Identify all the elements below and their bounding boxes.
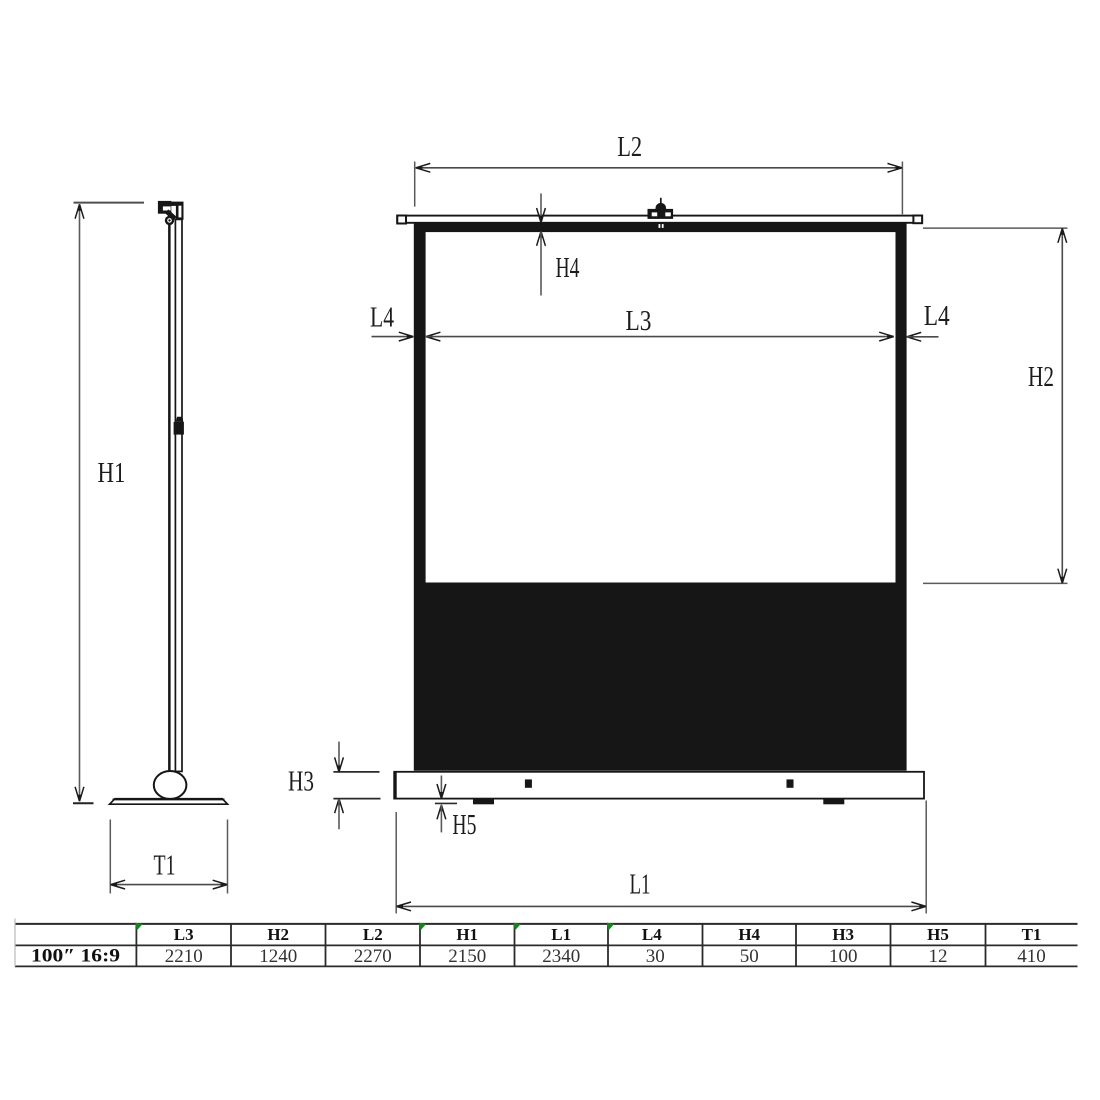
svg-text:L4: L4 [642, 925, 662, 944]
svg-text:H5: H5 [927, 925, 949, 944]
svg-text:L1: L1 [630, 869, 651, 901]
svg-text:H4: H4 [556, 252, 580, 284]
svg-text:H5: H5 [452, 809, 476, 841]
svg-text:30: 30 [646, 946, 665, 967]
svg-text:100″ 16:9: 100″ 16:9 [31, 946, 120, 967]
svg-text:H1: H1 [98, 457, 126, 489]
svg-text:2340: 2340 [542, 946, 580, 967]
svg-text:L1: L1 [551, 925, 571, 944]
svg-text:T1: T1 [154, 850, 176, 882]
svg-text:100: 100 [829, 946, 858, 967]
svg-text:L2: L2 [363, 925, 383, 944]
svg-text:T1: T1 [1022, 925, 1042, 944]
svg-text:50: 50 [740, 946, 759, 967]
svg-text:H4: H4 [738, 925, 760, 944]
svg-text:1240: 1240 [259, 946, 297, 967]
svg-text:L4: L4 [370, 302, 394, 334]
svg-text:H1: H1 [456, 925, 478, 944]
svg-text:2210: 2210 [165, 946, 203, 967]
svg-text:H2: H2 [267, 925, 289, 944]
svg-text:L2: L2 [617, 131, 642, 163]
svg-text:410: 410 [1017, 946, 1046, 967]
svg-text:L3: L3 [174, 925, 194, 944]
svg-text:L3: L3 [626, 305, 652, 337]
svg-text:12: 12 [929, 946, 948, 967]
svg-text:H3: H3 [832, 925, 854, 944]
svg-text:L4: L4 [924, 300, 950, 332]
svg-text:2150: 2150 [448, 946, 486, 967]
svg-text:H3: H3 [288, 766, 314, 798]
svg-text:2270: 2270 [354, 946, 392, 967]
svg-text:H2: H2 [1028, 361, 1054, 393]
